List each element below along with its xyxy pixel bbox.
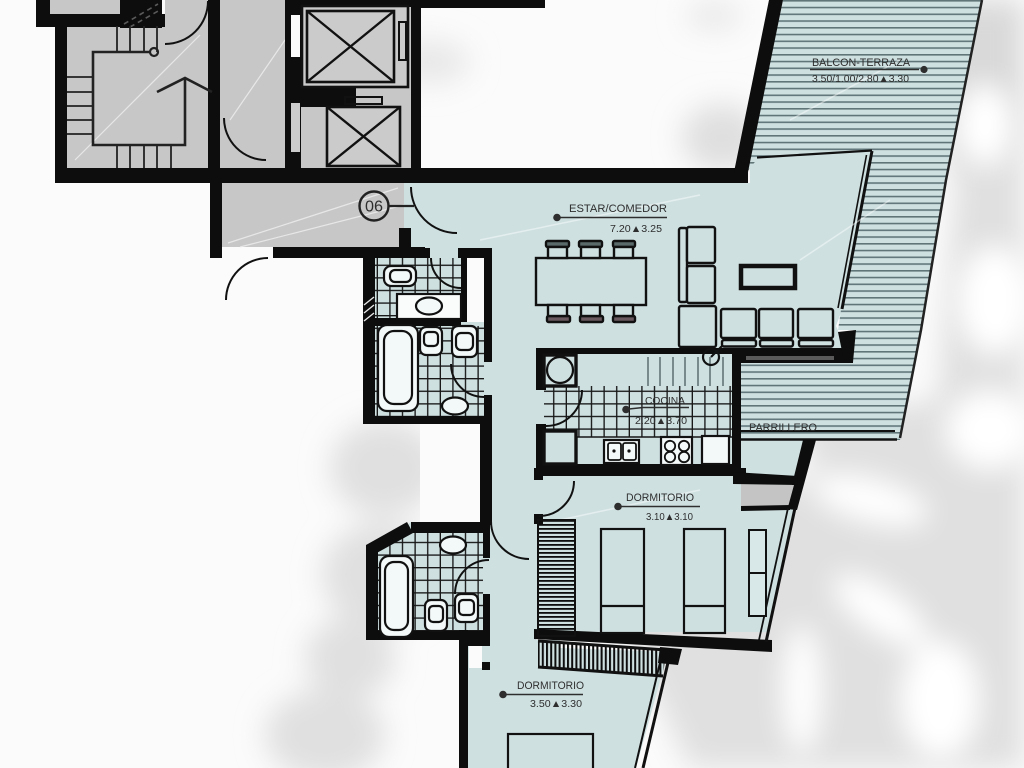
svg-text:BALCON-TERRAZA: BALCON-TERRAZA (812, 57, 911, 69)
svg-text:COCINA: COCINA (645, 396, 685, 407)
svg-text:DORMITORIO: DORMITORIO (626, 492, 694, 504)
svg-text:06: 06 (365, 199, 383, 216)
svg-text:2.20▲3.70: 2.20▲3.70 (635, 416, 687, 427)
svg-text:3.10▲3.10: 3.10▲3.10 (646, 512, 693, 523)
svg-text:DORMITORIO: DORMITORIO (517, 680, 584, 692)
svg-text:3.50/1.00/2.80▲3.30: 3.50/1.00/2.80▲3.30 (812, 74, 909, 85)
svg-text:3.50▲3.30: 3.50▲3.30 (530, 699, 582, 710)
svg-text:PARRILLERO: PARRILLERO (749, 422, 817, 434)
svg-text:7.20▲3.25: 7.20▲3.25 (610, 224, 662, 235)
svg-text:ESTAR/COMEDOR: ESTAR/COMEDOR (569, 203, 667, 215)
